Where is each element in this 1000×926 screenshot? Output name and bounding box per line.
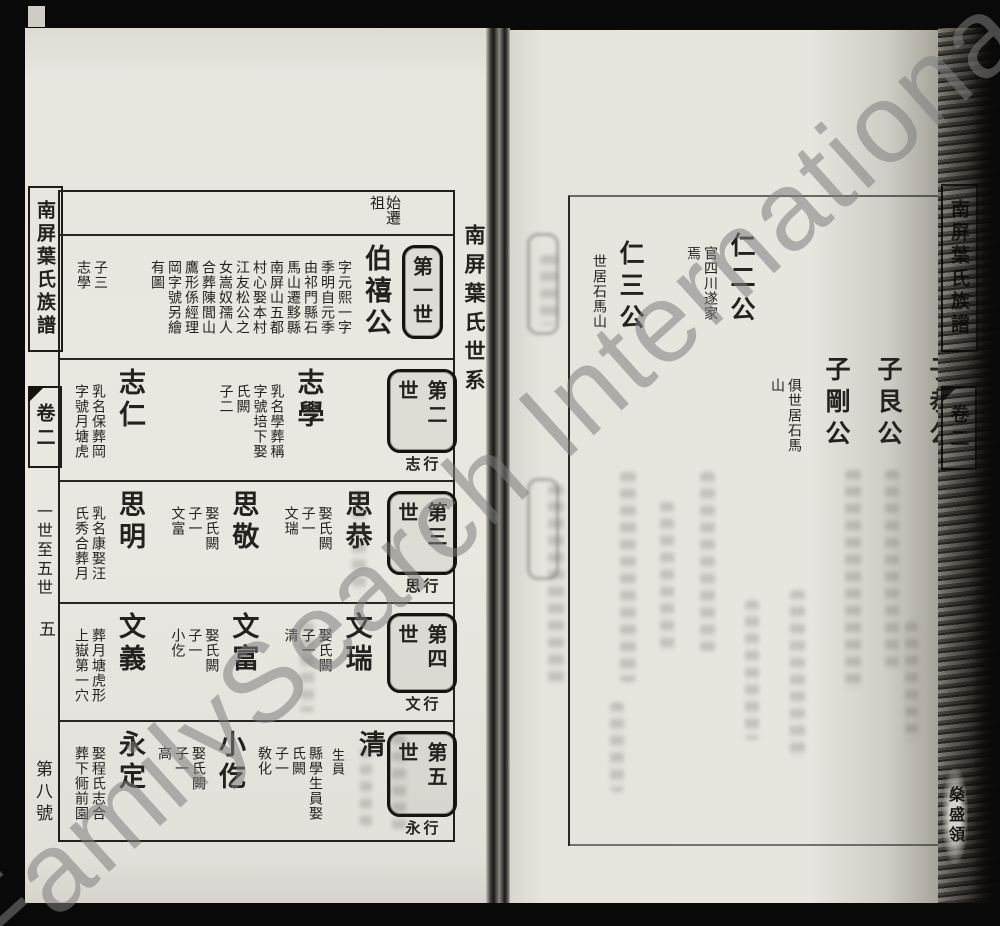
- generation-badge: 第二世: [387, 369, 457, 453]
- grid-header: 始遷祖: [60, 192, 453, 234]
- bleedthrough-smudge: [745, 600, 759, 740]
- person-note: 字元熙一字季明自元季由祁門縣石馬山遷黟縣南屏山五都村心娶本村江友松公之女嵩奴孺人…: [148, 260, 352, 340]
- bleedthrough-smudge: [392, 735, 406, 830]
- bleedthrough-smudge: [300, 622, 314, 712]
- bleedthrough-smudge: [352, 492, 366, 592]
- left-spine-title: 南屏葉氏族譜: [32, 200, 59, 338]
- copy-claim-note: 燊盛領: [942, 768, 968, 864]
- margin-note-generation-range: 一世至五世: [31, 503, 55, 598]
- paper-tab: [28, 6, 45, 27]
- person-name: 思敬: [223, 482, 262, 602]
- right-volume-box: 卷二: [941, 386, 977, 470]
- person-name: 小仡: [210, 722, 249, 844]
- corner-fold-mark: [28, 386, 45, 403]
- person-title: 生員: [327, 748, 346, 844]
- scan-border-left: [0, 0, 25, 926]
- generation-badge-column: 第一世: [395, 236, 449, 358]
- person-entry: 小仡 娶氏闕 子一 高: [155, 722, 249, 844]
- right-page-bottom-rule: [568, 844, 938, 846]
- person-name: 志仁: [110, 360, 149, 480]
- person-note: 世居石馬山: [590, 254, 607, 334]
- generation-badge-column: 第二世 行 志: [395, 360, 449, 480]
- person-name: 仁二公: [723, 232, 759, 328]
- person-entry: 思敬 娶氏闕 子一 文富: [168, 482, 262, 602]
- generation-badge: 第三世: [387, 491, 457, 575]
- person-entry: 志仁 乳名保葬岡字號月塘虎: [72, 360, 149, 480]
- scan-border-bottom: [0, 903, 1000, 926]
- right-page: [508, 30, 940, 903]
- person-note: 娶氏闕 子一 高: [155, 746, 206, 826]
- person-entry: 仁二公 官四川遂家焉: [684, 232, 759, 328]
- founder-label: 始遷祖: [369, 195, 401, 231]
- person-name: 子艮公: [870, 356, 906, 458]
- generation-marker: 行 永: [405, 817, 438, 838]
- person-entry: 永定 娶程氏志合葬下衕前園: [72, 722, 149, 844]
- person-note: 娶氏闕 子一 文瑞: [282, 506, 333, 586]
- generation-row-4: 第四世 行 文 文瑞 娶氏闕 子一 清 文富 娶氏闕 子一 小: [60, 602, 453, 720]
- right-spine-title-box: 南屏葉氏族譜: [941, 184, 978, 352]
- generation-badge-column: 第四世 行 文: [395, 604, 449, 720]
- person-name: 志學: [289, 360, 328, 480]
- person-name: 文富: [223, 604, 262, 720]
- right-volume-label: 卷二: [946, 404, 973, 452]
- right-page-left-rule: [568, 196, 570, 846]
- person-note: 乳名保葬岡字號月塘虎: [72, 384, 106, 464]
- book-gutter: [486, 28, 510, 904]
- person-note: 官四川遂家焉: [684, 246, 718, 326]
- bleedthrough-smudge: [610, 702, 624, 792]
- person-name: 文瑞: [337, 604, 376, 720]
- bleedthrough-smudge: [885, 470, 899, 670]
- person-name: 文義: [110, 604, 149, 720]
- bleedthrough-smudge: [360, 748, 372, 828]
- person-name: 伯禧公: [356, 236, 395, 358]
- generation-marker: 行 志: [405, 453, 438, 474]
- person-name: 思明: [110, 482, 149, 602]
- person-name: 仁三公: [612, 240, 648, 336]
- right-page-top-rule: [568, 195, 938, 197]
- generation-row-2: 第二世 行 志 志學 乳名學葬稱字號培下娶 氏闕 子二 志仁 乳名保葬岡字號月塘…: [60, 358, 453, 480]
- person-note: 娶氏闕 子一 文富: [168, 506, 219, 586]
- bleedthrough-smudge: [845, 470, 861, 690]
- right-spine-title: 南屏葉氏族譜: [946, 199, 973, 337]
- person-note: 娶氏闕 子一 小仡: [168, 628, 219, 708]
- person-note: 俱世居石馬山: [768, 378, 802, 458]
- generation-row-1: 第一世 伯禧公 字元熙一字季明自元季由祁門縣石馬山遷黟縣南屏山五都村心娶本村江友…: [60, 234, 453, 358]
- bleedthrough-smudge: [905, 622, 918, 742]
- person-name: 子剛公: [818, 356, 854, 458]
- right-page-sibling-group: 子恭公 子艮公 子剛公 俱世居石馬山: [768, 356, 958, 458]
- generation-badge: 第一世: [402, 245, 443, 339]
- generation-row-3: 第三世 行 思 思恭 娶氏闕 子一 文瑞 思敬 娶氏闕 子一: [60, 480, 453, 602]
- bleedthrough-smudge: [620, 472, 636, 682]
- genealogy-book-scan: 南屏葉氏族譜 卷二 一世至五世 五 第八號 南屏葉氏世系 始遷祖 第一世 伯禧公: [0, 0, 1000, 926]
- bleedthrough-smudge: [540, 255, 558, 325]
- person-entry: 文義 葬月塘虎形上嶽第一穴: [72, 604, 149, 720]
- person-note: 乳名學葬稱字號培下娶 氏闕 子二: [217, 384, 285, 464]
- person-entry: 仁三公 世居石馬山: [590, 240, 648, 336]
- person-note: 乳名康娶汪氏秀合葬月: [72, 506, 106, 586]
- person-entry: 志學 乳名學葬稱字號培下娶 氏闕 子二: [217, 360, 328, 480]
- generation-marker: 行 思: [405, 575, 438, 596]
- person-note: 縣學生員娶氏闕 子一 敎化: [255, 746, 323, 826]
- margin-note-folio: 五: [33, 620, 58, 640]
- generation-badge: 第四世: [387, 613, 457, 693]
- person-note: 葬月塘虎形上嶽第一穴: [72, 628, 106, 708]
- left-volume-label: 卷二: [32, 403, 59, 451]
- bleedthrough-smudge: [790, 590, 805, 760]
- person-entry: 文富 娶氏闕 子一 小仡: [168, 604, 262, 720]
- person-name: 永定: [110, 722, 149, 844]
- person-note: 娶程氏志合葬下衕前園: [72, 746, 106, 826]
- person-note-tail: 子三 志學: [74, 260, 108, 340]
- bleedthrough-smudge: [660, 502, 674, 652]
- person-entry: 文瑞 娶氏闕 子一 清: [282, 604, 376, 720]
- person-entry: 伯禧公 字元熙一字季明自元季由祁門縣石馬山遷黟縣南屏山五都村心娶本村江友松公之女…: [108, 236, 395, 358]
- bleedthrough-smudge: [548, 485, 564, 685]
- bleedthrough-smudge: [700, 472, 715, 652]
- corner-fold-mark: [941, 386, 958, 403]
- person-entry: 思明 乳名康娶汪氏秀合葬月: [72, 482, 149, 602]
- generation-marker: 行 文: [405, 693, 438, 714]
- margin-note-copy-number: 第八號: [30, 760, 55, 826]
- left-volume-box: 卷二: [28, 386, 62, 468]
- scan-border-top: [0, 0, 1000, 28]
- section-title: 南屏葉氏世系: [459, 224, 489, 398]
- generation-badge-column: 第三世 行 思: [395, 482, 449, 602]
